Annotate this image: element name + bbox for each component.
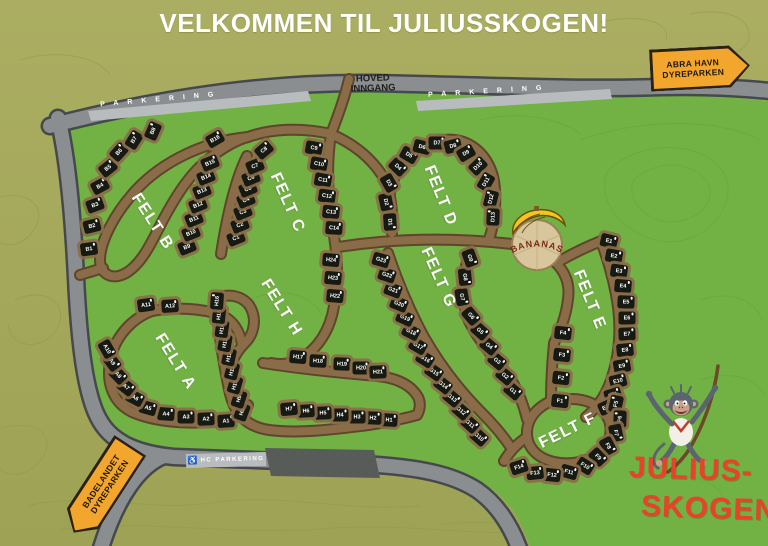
cabin-c13: C13 (322, 205, 340, 220)
cabin-e2: E2 (605, 248, 624, 264)
cabin-h21: H21 (369, 365, 386, 379)
wheelchair-icon: ♿ (187, 457, 197, 465)
cabin-h24: H24 (322, 253, 340, 267)
cabin-c10: C10 (310, 156, 329, 172)
logo-line-2: SKOGEN (640, 490, 768, 529)
cabin-h20: H20 (353, 362, 370, 375)
cabin-h4: H4 (332, 409, 349, 422)
cabin-g8: G8 (458, 268, 473, 286)
cabin-e4: E4 (614, 279, 632, 293)
logo-line-1: JULIUS- (628, 451, 753, 489)
cabin-c12: C12 (318, 188, 337, 203)
cabin-h2: H2 (364, 411, 381, 425)
cabin-f2: F2 (552, 371, 570, 386)
cabin-e3: E3 (610, 263, 629, 278)
cabin-c14: C14 (325, 221, 343, 235)
cabin-f4: F4 (554, 326, 572, 341)
cabin-e8: E8 (616, 343, 634, 358)
cabin-c9: C9 (305, 140, 324, 156)
campground-map-poster: BANANAS (0, 0, 768, 546)
main-entrance-label: HOVED INNGANG (340, 73, 407, 95)
cabin-f13: F13 (526, 466, 544, 481)
cabin-b1: B1 (80, 241, 99, 256)
cabin-h18: H18 (309, 354, 327, 368)
cabin-h19: H19 (333, 357, 350, 371)
cabin-a12: A12 (161, 299, 179, 313)
cabin-h7: H7 (280, 402, 298, 416)
cabin-e5: E5 (617, 295, 634, 309)
cabin-e6: E6 (619, 312, 636, 325)
cabin-a2: A2 (197, 412, 214, 426)
cabin-d13: D13 (486, 208, 500, 225)
cabin-h17: H17 (289, 350, 307, 364)
cabin-a3: A3 (178, 411, 195, 424)
cabin-c11: C11 (314, 172, 333, 188)
cabin-h6: H6 (297, 404, 315, 418)
cabin-h16: H16 (210, 292, 224, 310)
cabin-h3: H3 (349, 411, 366, 424)
cabin-f3: F3 (553, 348, 571, 363)
cabin-h1: H1 (380, 413, 398, 427)
cabin-h23: H23 (324, 271, 342, 285)
hc-parking-lot (265, 448, 380, 478)
cabin-d1: D1 (383, 213, 397, 231)
sign-abra-havn: ABRA HAVN DYREPARKEN (649, 44, 751, 91)
hc-parking-label: ♿ HC PARKERING (186, 452, 266, 468)
cabin-h5: H5 (314, 406, 331, 420)
cabin-f1: F1 (551, 394, 569, 409)
cabin-e7: E7 (618, 327, 635, 341)
cabin-a11: A11 (137, 297, 156, 312)
cabin-h22: H22 (326, 289, 344, 303)
cabin-a1: A1 (217, 414, 235, 428)
cabin-a4: A4 (157, 407, 175, 421)
page-title: VELKOMMEN TIL JULIUSSKOGEN! (0, 8, 768, 39)
cabin-f12: F12 (543, 468, 561, 483)
